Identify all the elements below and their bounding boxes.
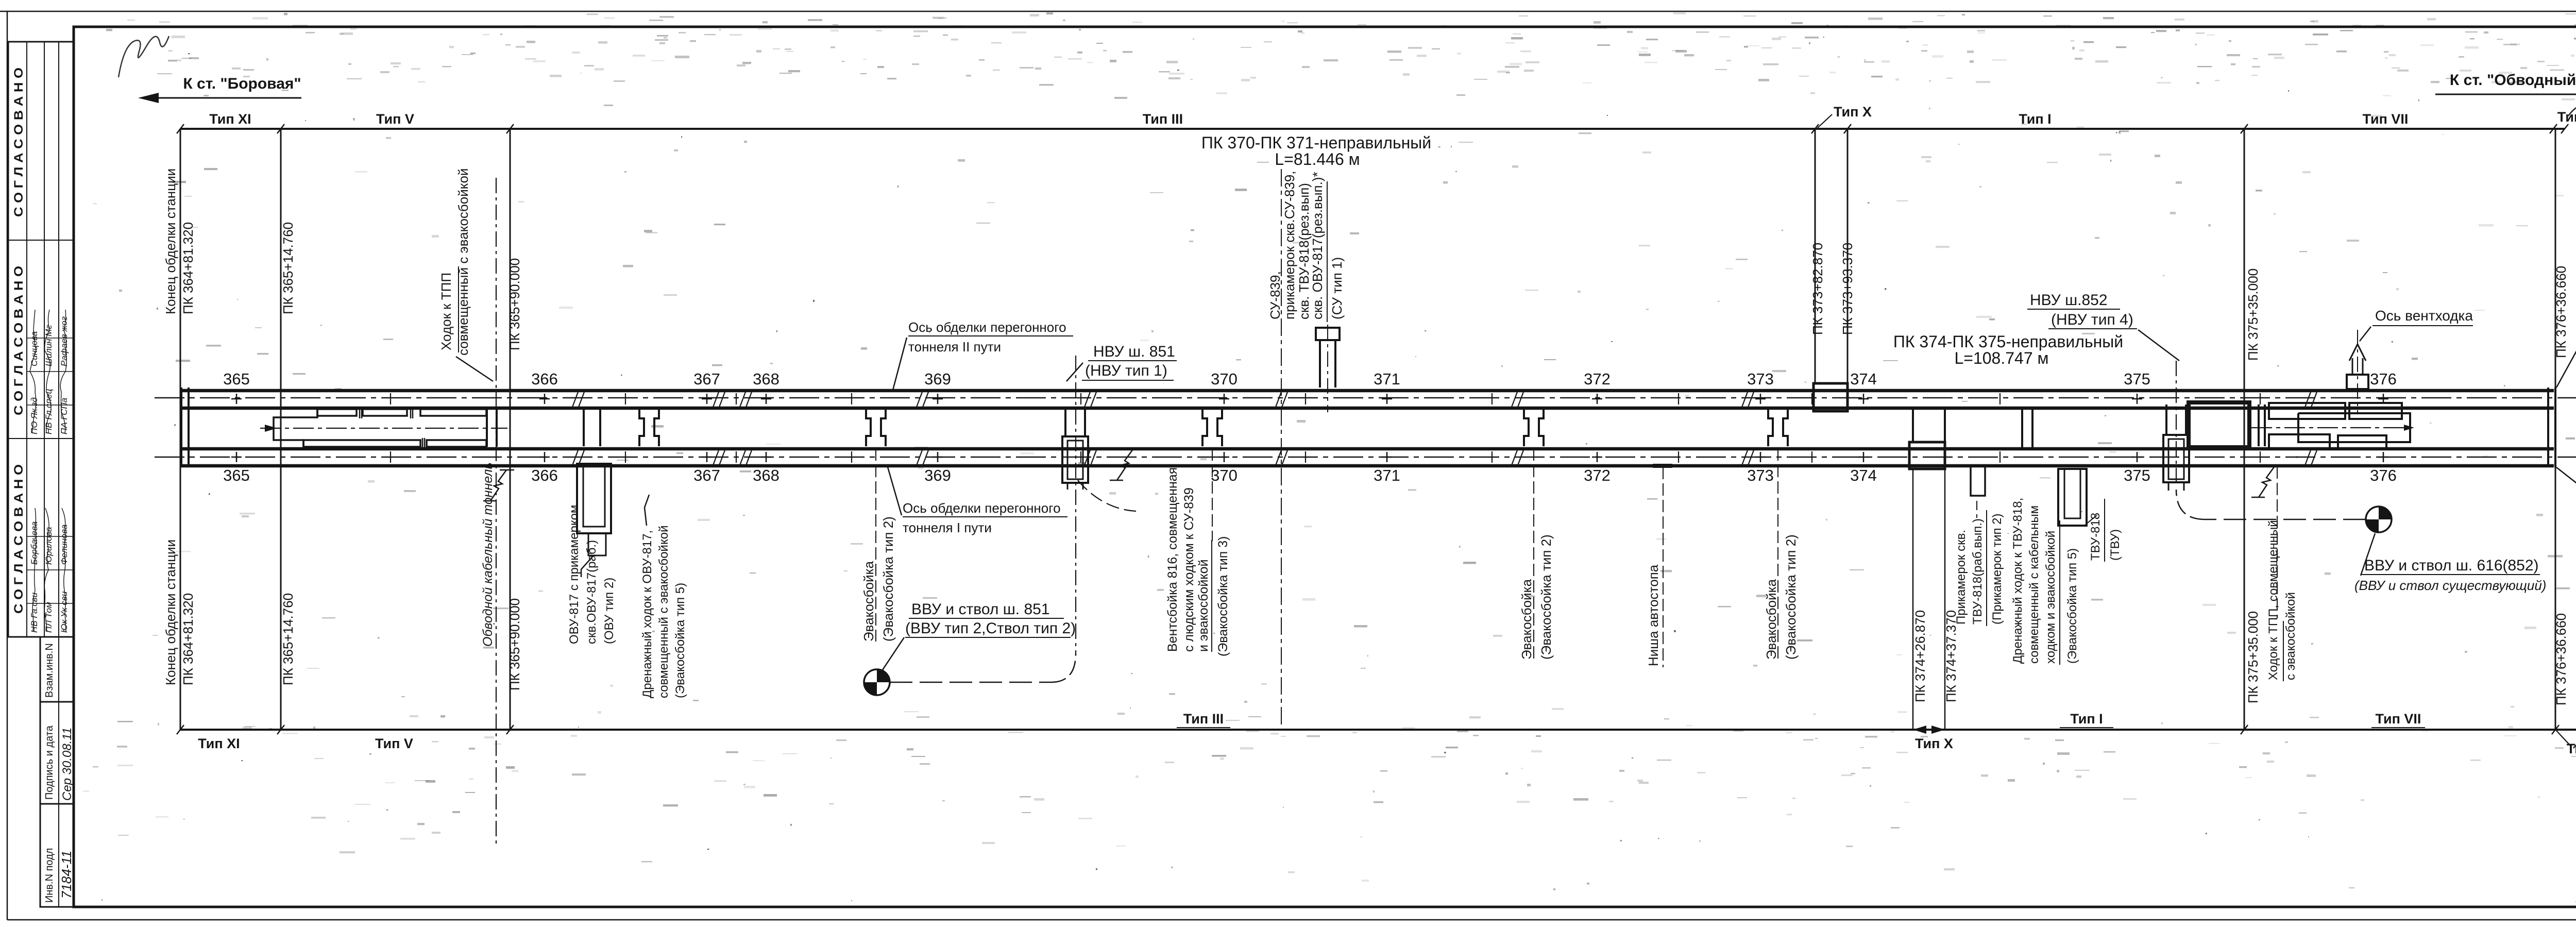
svg-text:Эвакосбойка: Эвакосбойка bbox=[1519, 579, 1534, 660]
svg-text:(НВУ тип 4): (НВУ тип 4) bbox=[2051, 311, 2133, 328]
svg-text:ПК 364+81.320: ПК 364+81.320 bbox=[180, 593, 196, 685]
svg-text:Тип X: Тип X bbox=[1915, 736, 1953, 751]
svg-text:376: 376 bbox=[2370, 466, 2397, 484]
svg-text:ПК 375+35.000: ПК 375+35.000 bbox=[2245, 611, 2261, 703]
svg-text:Конец обделки станции: Конец обделки станции bbox=[163, 540, 178, 685]
svg-text:Тип XI: Тип XI bbox=[209, 111, 251, 127]
svg-text:Тип VII: Тип VII bbox=[2363, 111, 2409, 127]
svg-text:ВВУ и ствол ш. 851: ВВУ и ствол ш. 851 bbox=[911, 601, 1050, 618]
svg-text:366: 366 bbox=[531, 466, 558, 484]
svg-text:скв.ОВУ-817(раб.): скв.ОВУ-817(раб.) bbox=[585, 540, 599, 644]
svg-text:375: 375 bbox=[2124, 466, 2150, 484]
svg-text:ПК 365+14.760: ПК 365+14.760 bbox=[280, 593, 296, 685]
svg-text:и эвакосбойкой: и эвакосбойкой bbox=[1196, 560, 1211, 652]
svg-text:С О Г Л А С О В А Н О: С О Г Л А С О В А Н О bbox=[12, 68, 26, 217]
svg-text:С О Г Л А С О В А Н О: С О Г Л А С О В А Н О bbox=[12, 266, 26, 415]
svg-text:(НВУ тип 1): (НВУ тип 1) bbox=[1085, 362, 1167, 379]
svg-text:(Эвакосбойка тип 5): (Эвакосбойка тип 5) bbox=[673, 583, 687, 698]
svg-text:(Эвакосбойка тип 2): (Эвакосбойка тип 2) bbox=[1538, 534, 1554, 660]
svg-text:(ОВУ тип 2): (ОВУ тип 2) bbox=[602, 578, 616, 644]
svg-text:тоннеля I пути: тоннеля I пути bbox=[903, 520, 992, 535]
svg-text:371: 371 bbox=[1374, 370, 1400, 388]
svg-text:367: 367 bbox=[693, 466, 720, 484]
svg-text:(Прикамерок тип 2): (Прикамерок тип 2) bbox=[1990, 514, 2004, 625]
svg-text:Инв.N подл: Инв.N подл bbox=[44, 848, 55, 903]
svg-text:ПК 375+35.000: ПК 375+35.000 bbox=[2245, 268, 2261, 361]
svg-text:совмещенный с эвакосбойкой: совмещенный с эвакосбойкой bbox=[657, 526, 671, 698]
svg-text:ПК 365+90.000: ПК 365+90.000 bbox=[507, 598, 522, 690]
svg-text:ПК 374-ПК 375-неправильный: ПК 374-ПК 375-неправильный bbox=[1893, 332, 2123, 351]
svg-text:Фелинова: Фелинова bbox=[59, 525, 69, 565]
svg-text:L=108.747 м: L=108.747 м bbox=[1954, 349, 2048, 367]
svg-text:373: 373 bbox=[1747, 466, 1774, 484]
svg-text:Тип XIII: Тип XIII bbox=[2557, 109, 2576, 125]
svg-text:366: 366 bbox=[531, 370, 558, 388]
svg-text:ПК 374+26.870: ПК 374+26.870 bbox=[1912, 610, 1928, 702]
svg-text:НВ Гл.спец: НВ Гл.спец bbox=[44, 389, 54, 434]
svg-text:Юк Ук сви: Юк Ук сви bbox=[59, 591, 69, 633]
svg-text:Тип X: Тип X bbox=[1834, 104, 1872, 120]
svg-text:совмещенный с кабельным: совмещенный с кабельным bbox=[2027, 505, 2041, 664]
svg-text:ПК 365+14.760: ПК 365+14.760 bbox=[280, 222, 296, 314]
svg-text:Обводной кабельный тоннель: Обводной кабельный тоннель bbox=[481, 462, 495, 647]
svg-text:Сер 30.08.11: Сер 30.08.11 bbox=[60, 728, 74, 801]
svg-text:(ВВУ тип 2,Ствол тип 2): (ВВУ тип 2,Ствол тип 2) bbox=[905, 620, 1076, 637]
svg-text:К ст. "Обводный канал-2": К ст. "Обводный канал-2" bbox=[2450, 72, 2576, 89]
svg-text:Тип XI: Тип XI bbox=[198, 736, 240, 751]
svg-text:ПК 370-ПК 371-неправильный: ПК 370-ПК 371-неправильный bbox=[1201, 133, 1431, 152]
svg-text:Тип I: Тип I bbox=[2019, 111, 2051, 127]
svg-text:(СУ тип 1): (СУ тип 1) bbox=[1329, 257, 1345, 319]
svg-text:СУ-839,: СУ-839, bbox=[1267, 271, 1283, 319]
svg-text:ПК 376+36.660: ПК 376+36.660 bbox=[2553, 266, 2569, 358]
svg-text:372: 372 bbox=[1584, 466, 1611, 484]
svg-text:совмещенный с эвакосбойкой: совмещенный с эвакосбойкой bbox=[455, 168, 471, 356]
svg-text:Тип V: Тип V bbox=[376, 111, 414, 127]
svg-text:скв. ОВУ-817(рез.вып.)*: скв. ОВУ-817(рез.вып.)* bbox=[1310, 172, 1325, 319]
svg-text:Эвакосбойка: Эвакосбойка bbox=[861, 561, 876, 642]
svg-text:367: 367 bbox=[693, 370, 720, 388]
svg-text:Ось обделки перегонного: Ось обделки перегонного bbox=[903, 500, 1061, 516]
svg-text:Тип V: Тип V bbox=[375, 736, 413, 751]
svg-text:с людским ходком к СУ-839: с людским ходком к СУ-839 bbox=[1182, 487, 1196, 652]
svg-text:ПК 373+93.370: ПК 373+93.370 bbox=[1840, 243, 1855, 335]
svg-text:Ходок к ТПП, совмещенный: Ходок к ТПП, совмещенный bbox=[2266, 520, 2280, 680]
svg-text:(ТВУ): (ТВУ) bbox=[2108, 529, 2122, 561]
svg-text:Дренажный ходок к ОВУ-817,: Дренажный ходок к ОВУ-817, bbox=[640, 530, 654, 698]
svg-text:Рафаев жог: Рафаев жог bbox=[59, 316, 69, 366]
svg-text:Подпись и дата: Подпись и дата bbox=[44, 725, 55, 800]
svg-text:(Эвакосбойка тип 2): (Эвакосбойка тип 2) bbox=[1783, 534, 1799, 660]
svg-text:НВ Га.сви: НВ Га.сви bbox=[29, 592, 39, 633]
svg-text:365: 365 bbox=[223, 466, 250, 484]
svg-text:376: 376 bbox=[2370, 370, 2397, 388]
svg-text:Тип VII: Тип VII bbox=[2376, 711, 2421, 727]
svg-text:Ходок к ТПП: Ходок к ТПП bbox=[438, 273, 454, 350]
svg-text:Тип I: Тип I bbox=[2070, 711, 2103, 727]
svg-text:с эвакосбойкой: с эвакосбойкой bbox=[2284, 592, 2298, 680]
svg-text:Эвакосбойка: Эвакосбойка bbox=[1764, 579, 1779, 660]
svg-text:Взам.инв.N: Взам.инв.N bbox=[44, 643, 55, 698]
svg-text:369: 369 bbox=[924, 466, 951, 484]
svg-text:375: 375 bbox=[2124, 370, 2150, 388]
svg-text:ПК 365+90.000: ПК 365+90.000 bbox=[507, 258, 522, 350]
svg-text:Юрилова: Юрилова bbox=[44, 527, 54, 565]
svg-text:ПК 364+81.320: ПК 364+81.320 bbox=[180, 222, 196, 314]
svg-text:Ось вентходка: Ось вентходка bbox=[2375, 308, 2473, 324]
svg-text:Тип III: Тип III bbox=[1143, 111, 1183, 127]
svg-text:Дренажный ходок к ТВУ-818,: Дренажный ходок к ТВУ-818, bbox=[2011, 498, 2025, 664]
svg-text:тоннеля II пути: тоннеля II пути bbox=[908, 339, 1001, 355]
svg-text:НВУ ш.852: НВУ ш.852 bbox=[2030, 292, 2108, 309]
svg-text:7184-11: 7184-11 bbox=[59, 851, 74, 899]
svg-text:ПК 373+82.870: ПК 373+82.870 bbox=[1810, 243, 1825, 335]
svg-text:ОВУ-817 с прикамерком: ОВУ-817 с прикамерком bbox=[567, 505, 581, 644]
svg-text:Конец обделки станции: Конец обделки станции bbox=[163, 168, 178, 314]
svg-text:368: 368 bbox=[753, 466, 779, 484]
svg-text:(ВВУ и ствол существующий): (ВВУ и ствол существующий) bbox=[2354, 578, 2546, 593]
svg-text:369: 369 bbox=[924, 370, 951, 388]
svg-text:Прикамерок скв.: Прикамерок скв. bbox=[1954, 530, 1968, 625]
svg-text:365: 365 bbox=[223, 370, 250, 388]
svg-text:372: 372 bbox=[1584, 370, 1611, 388]
svg-text:Вентсбойка 816, совмещенная: Вентсбойка 816, совмещенная bbox=[1165, 467, 1180, 652]
svg-text:373: 373 bbox=[1747, 370, 1774, 388]
svg-text:(Эвакосбойка тип 2): (Эвакосбойка тип 2) bbox=[880, 516, 896, 642]
svg-text:НВУ ш. 851: НВУ ш. 851 bbox=[1093, 343, 1175, 360]
svg-text:368: 368 bbox=[753, 370, 779, 388]
svg-text:(Эвакосбойка тип 5): (Эвакосбойка тип 5) bbox=[2065, 548, 2079, 664]
svg-text:ПК 376+36.660: ПК 376+36.660 bbox=[2553, 613, 2569, 705]
svg-text:ВВУ и ствол ш. 616(852): ВВУ и ствол ш. 616(852) bbox=[2364, 557, 2539, 574]
svg-text:Ниша автостопа: Ниша автостопа bbox=[1646, 564, 1661, 666]
svg-text:371: 371 bbox=[1374, 466, 1400, 484]
svg-text:прикамерок скв.СУ-839,: прикамерок скв.СУ-839, bbox=[1282, 171, 1297, 319]
svg-text:370: 370 bbox=[1211, 370, 1238, 388]
svg-text:Борбачева: Борбачева bbox=[29, 521, 39, 565]
svg-text:(Эвакосбойка тип 3): (Эвакосбойка тип 3) bbox=[1216, 536, 1230, 656]
svg-text:Тип III: Тип III bbox=[1183, 711, 1224, 727]
svg-text:ТВУ-818(раб.вып.): ТВУ-818(раб.вып.) bbox=[1971, 518, 1985, 625]
svg-text:374: 374 bbox=[1850, 370, 1877, 388]
svg-text:ходком и эвакосбойкой: ходком и эвакосбойкой bbox=[2044, 531, 2058, 664]
svg-text:L=81.446 м: L=81.446 м bbox=[1275, 150, 1360, 168]
svg-text:С О Г Л А С О В А Н О: С О Г Л А С О В А Н О bbox=[12, 464, 26, 614]
svg-text:К ст. "Боровая": К ст. "Боровая" bbox=[183, 75, 301, 92]
svg-text:Ось обделки перегонного: Ось обделки перегонного bbox=[908, 319, 1066, 335]
svg-text:370: 370 bbox=[1211, 466, 1238, 484]
svg-text:374: 374 bbox=[1850, 466, 1877, 484]
